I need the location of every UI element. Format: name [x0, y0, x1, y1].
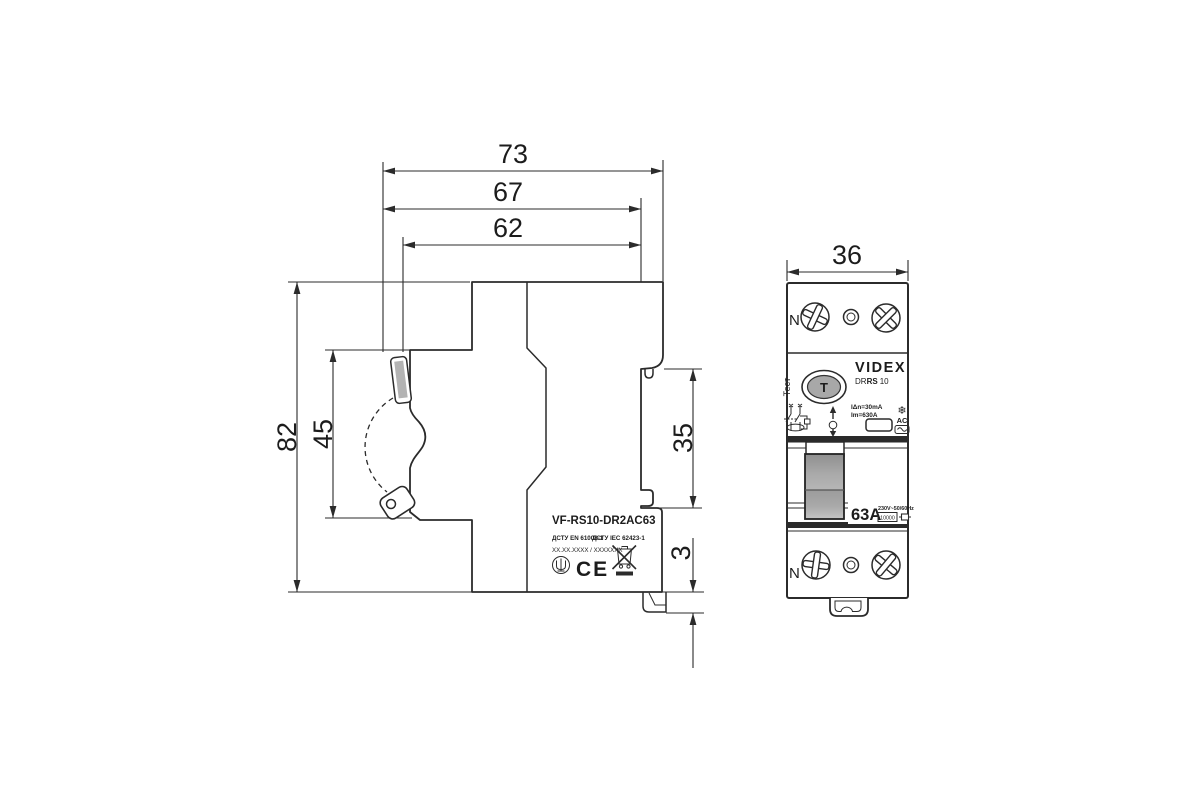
technical-drawing-page: 73 67 62 82 45 35 3	[0, 0, 1200, 800]
screw-terminal-icon	[801, 550, 830, 579]
test-button-letter: T	[820, 380, 828, 395]
din-clip-hook-detail	[649, 593, 666, 605]
din-clip-hook	[643, 592, 666, 612]
rating-block: 63A 230V~50/60Hz 10000	[848, 502, 914, 524]
lever-travel-arc	[365, 398, 393, 492]
rating-im: Im=630A	[851, 412, 878, 419]
dim-62-label: 62	[493, 213, 523, 243]
rail-latch-bump-top	[645, 369, 653, 378]
rating-idn: IΔn=30mA	[851, 404, 883, 411]
dim-67-label: 67	[493, 177, 523, 207]
brand-logo: VIDEX	[855, 360, 906, 376]
current-rating: 63A	[851, 506, 881, 524]
dim-36-label: 36	[832, 240, 862, 270]
model-number: VF-RS10-DR2AC63	[552, 515, 656, 527]
dim-73-label: 73	[498, 139, 528, 169]
test-label: Тест	[782, 378, 792, 397]
toggle-lever-up	[390, 356, 411, 404]
terminal-n-label: N	[789, 312, 800, 329]
breaking-capacity: 10000	[880, 516, 895, 522]
ce-mark-icon: CE	[576, 558, 609, 581]
front-view: 36 N	[782, 240, 914, 616]
serial-placeholder: XX.XX.XXXX / XXXXXXX	[552, 547, 623, 554]
dim-35-label: 35	[668, 423, 698, 453]
din-clip-tab	[830, 598, 868, 616]
side-view: 73 67 62 82 45 35 3	[272, 139, 704, 668]
dim-45-label: 45	[308, 419, 338, 449]
type-ac-label: AC	[897, 416, 908, 425]
rcd-dimension-drawing: 73 67 62 82 45 35 3	[0, 0, 1200, 800]
dim-3-label: 3	[666, 545, 696, 560]
side-body-outline	[410, 282, 663, 592]
standard-2: ДСТУ IEC 62423-1	[592, 535, 645, 542]
trip-indicator-window	[866, 419, 892, 431]
model-line: DRRS10	[855, 377, 889, 386]
voltage-rating: 230V~50/60Hz	[878, 506, 914, 512]
dim-82-label: 82	[272, 422, 302, 452]
terminal-n-label: N	[789, 565, 800, 582]
switch-handle	[805, 454, 844, 519]
test-button: T	[802, 371, 846, 404]
